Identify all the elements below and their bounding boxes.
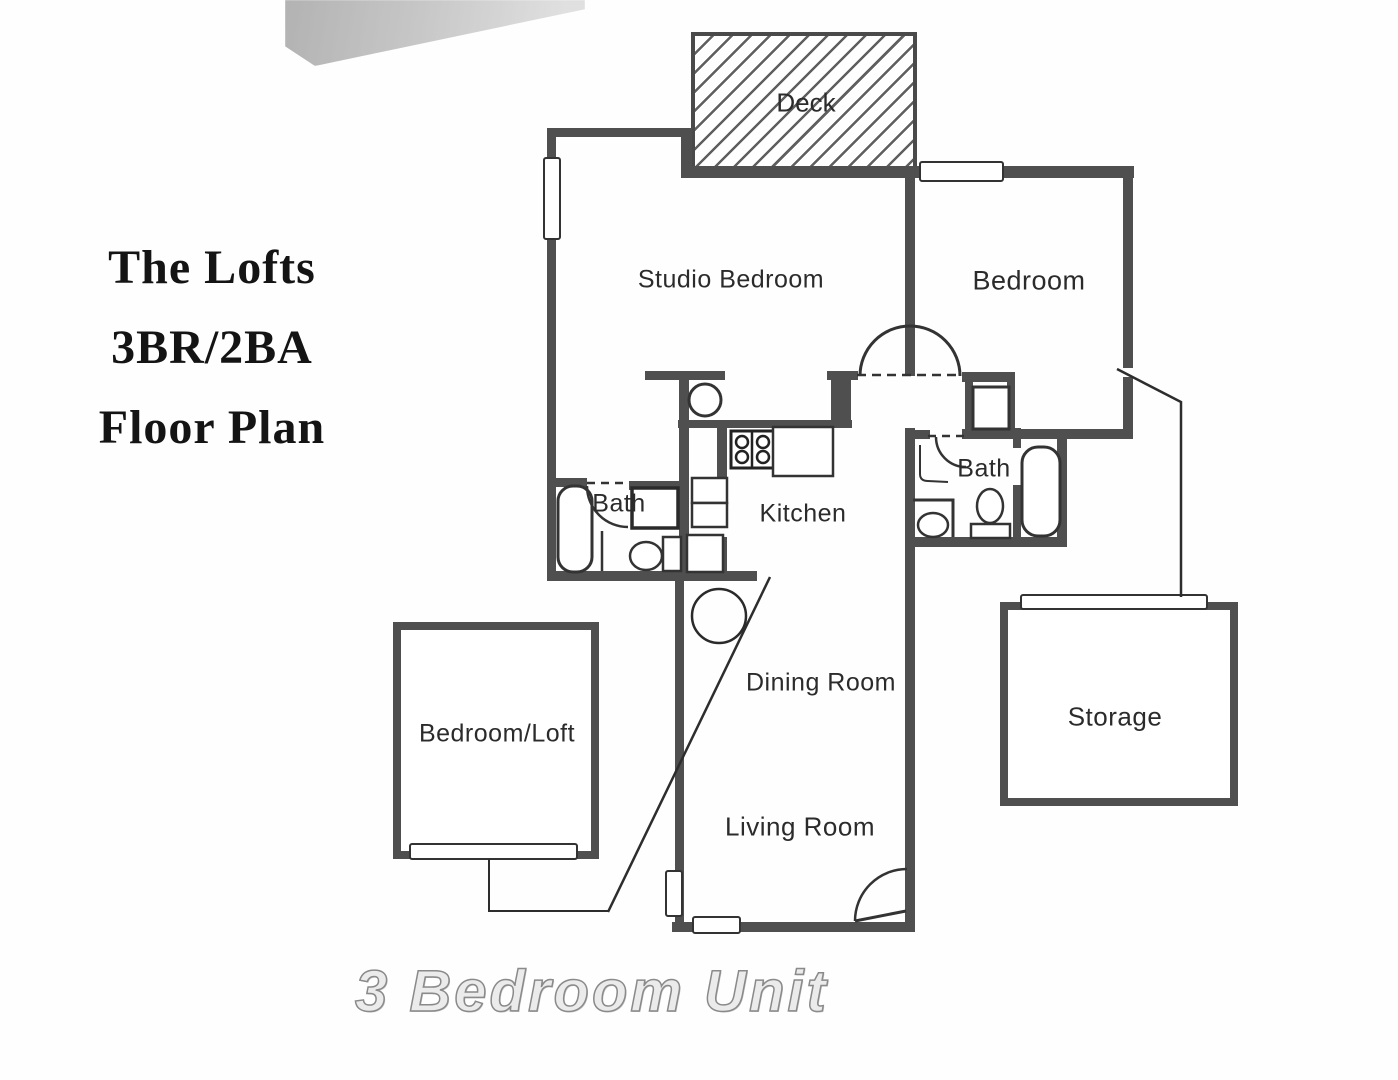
- closet-box: [973, 387, 1009, 429]
- toilet-bowl-icon: [630, 542, 662, 570]
- living-room-door-leaf: [855, 911, 906, 921]
- room-label-bath-right: Bath: [957, 455, 1010, 484]
- room-label-dining-room: Dining Room: [746, 669, 896, 698]
- floor-plan-drawing: [0, 0, 1398, 1080]
- plan-title-line1: The Lofts: [62, 228, 362, 308]
- kitchen-sink-icon: [689, 384, 721, 416]
- room-label-living-room: Living Room: [725, 812, 875, 843]
- wall-bath-right-divider-stub-a-v: [1013, 428, 1021, 448]
- wall-studio-bedroom-divider-v: [905, 174, 915, 376]
- room-label-studio-bedroom: Studio Bedroom: [638, 266, 824, 295]
- floor-plan-page: The Lofts 3BR/2BA Floor Plan Deck Studio…: [0, 0, 1398, 1080]
- wall-bath-right-divider-stub-b-v: [1013, 485, 1021, 538]
- kitchen-counter: [773, 427, 833, 476]
- window-bedroom-top: [920, 162, 1003, 181]
- window-living-left: [666, 871, 682, 916]
- utility-cabinet: [687, 535, 723, 572]
- window-living-bottom: [693, 917, 740, 933]
- stair-diagonal-line: [608, 577, 770, 912]
- room-label-bath-left: Bath: [592, 490, 645, 519]
- plan-title: The Lofts 3BR/2BA Floor Plan: [62, 228, 362, 468]
- bath-right-corner-line: [920, 445, 948, 482]
- door-storage: [1021, 595, 1207, 609]
- utility-cabinet: [692, 478, 727, 503]
- sink-icon: [918, 513, 948, 537]
- wall-top-left-h: [547, 128, 692, 137]
- bathtub-icon: [1022, 447, 1060, 536]
- dining-table-icon: [692, 589, 746, 643]
- window-studio-left: [544, 158, 560, 239]
- utility-cabinet: [692, 503, 727, 527]
- toilet-tank-icon: [971, 524, 1010, 538]
- plan-title-line2: 3BR/2BA: [62, 308, 362, 388]
- room-label-kitchen: Kitchen: [760, 500, 847, 529]
- loft-connector-line: [489, 859, 608, 911]
- room-label-deck: Deck: [776, 88, 835, 119]
- wall-bedroom-right-upper-v: [1123, 166, 1133, 368]
- bathtub-icon: [558, 486, 592, 572]
- room-label-bedroom-loft: Bedroom/Loft: [419, 720, 575, 749]
- plan-title-line3: Floor Plan: [62, 388, 362, 468]
- room-label-bedroom: Bedroom: [972, 266, 1085, 297]
- toilet-tank-icon: [663, 537, 681, 571]
- door-bedroom-loft: [410, 844, 577, 859]
- toilet-bowl-icon: [977, 489, 1003, 523]
- wall-bath-right-top-h: [905, 430, 930, 439]
- wall-dining-right-v: [905, 428, 915, 932]
- wall-kitchen-chase-v: [831, 371, 851, 428]
- room-label-storage: Storage: [1068, 702, 1163, 733]
- unit-caption: 3 Bedroom Unit: [355, 958, 885, 1025]
